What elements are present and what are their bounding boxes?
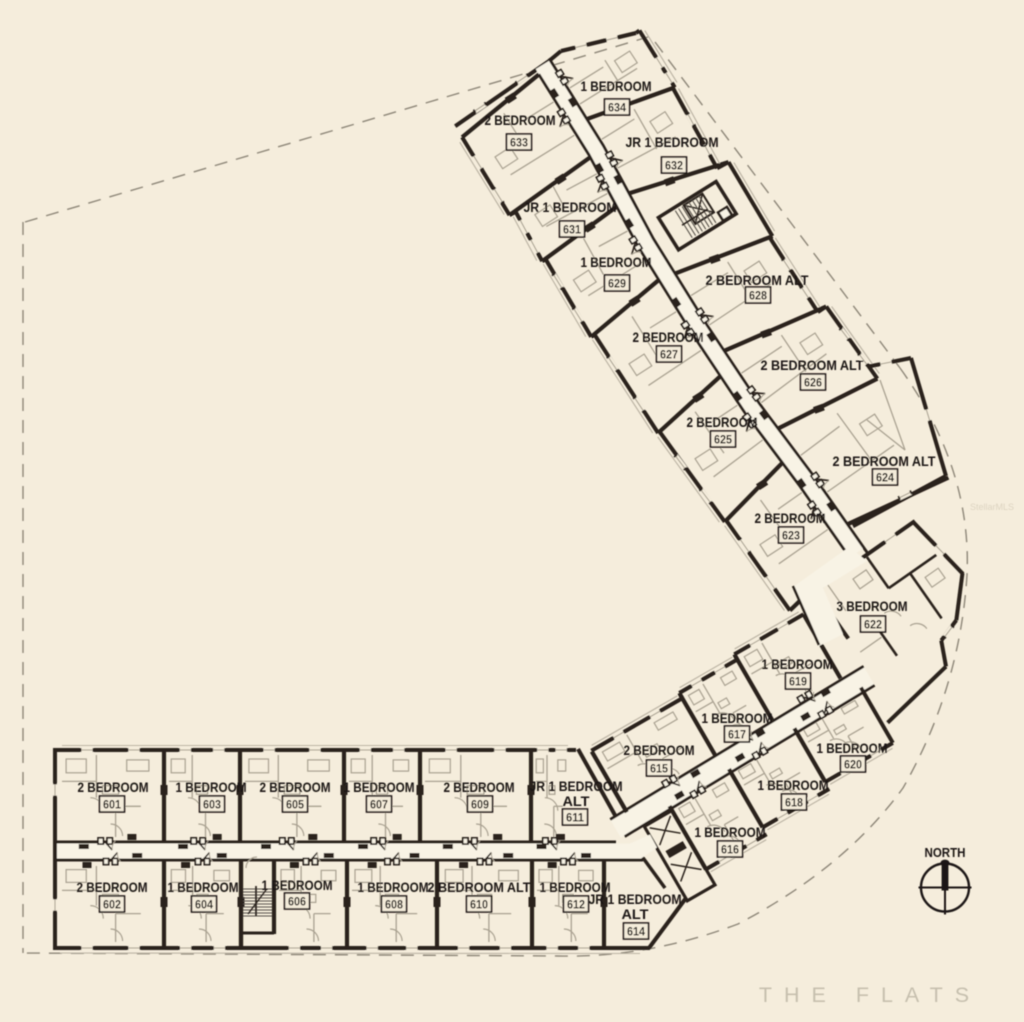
svg-text:2 BEDROOM: 2 BEDROOM xyxy=(444,779,515,795)
svg-text:2 BEDROOM: 2 BEDROOM xyxy=(78,779,149,795)
svg-text:619: 619 xyxy=(789,674,807,688)
svg-text:3 BEDROOM: 3 BEDROOM xyxy=(837,598,908,614)
svg-text:609: 609 xyxy=(471,797,489,811)
svg-text:1 BEDROOM: 1 BEDROOM xyxy=(762,656,833,672)
svg-text:601: 601 xyxy=(103,797,121,811)
svg-text:2 BEDROOM: 2 BEDROOM xyxy=(633,329,704,345)
svg-text:ALT: ALT xyxy=(563,793,590,809)
svg-text:608: 608 xyxy=(385,897,403,911)
svg-text:622: 622 xyxy=(864,617,882,631)
svg-text:NORTH: NORTH xyxy=(925,846,966,860)
svg-text:1 BEDROOM: 1 BEDROOM xyxy=(758,777,829,793)
svg-text:626: 626 xyxy=(804,375,822,389)
svg-text:1 BEDROOM: 1 BEDROOM xyxy=(358,879,429,895)
svg-text:2 BEDROOM ALT: 2 BEDROOM ALT xyxy=(761,357,864,373)
svg-text:JR 1 BEDROOM: JR 1 BEDROOM xyxy=(626,134,719,150)
svg-text:605: 605 xyxy=(286,797,304,811)
svg-text:JR 1 BEDROOM: JR 1 BEDROOM xyxy=(589,891,682,907)
svg-text:2 BEDROOM ALT: 2 BEDROOM ALT xyxy=(428,879,531,895)
svg-text:JR 1 BEDROOM: JR 1 BEDROOM xyxy=(530,778,623,794)
svg-text:614: 614 xyxy=(627,924,645,938)
svg-text:THE FLATS: THE FLATS xyxy=(759,983,981,1007)
svg-text:1 BEDROOM: 1 BEDROOM xyxy=(581,254,652,270)
svg-text:607: 607 xyxy=(370,797,388,811)
svg-text:2 BEDROOM: 2 BEDROOM xyxy=(687,414,758,430)
svg-text:ALT: ALT xyxy=(622,906,649,922)
svg-text:632: 632 xyxy=(665,158,683,172)
svg-text:602: 602 xyxy=(103,897,121,911)
svg-text:629: 629 xyxy=(608,276,626,290)
svg-text:2 BEDROOM: 2 BEDROOM xyxy=(260,779,331,795)
svg-text:620: 620 xyxy=(844,757,862,771)
svg-text:1 BEDROOM: 1 BEDROOM xyxy=(702,710,773,726)
svg-text:628: 628 xyxy=(749,288,767,302)
svg-text:616: 616 xyxy=(721,842,739,856)
svg-text:612: 612 xyxy=(567,897,585,911)
svg-text:631: 631 xyxy=(563,222,581,236)
svg-text:604: 604 xyxy=(195,897,213,911)
svg-text:1 BEDROOM: 1 BEDROOM xyxy=(695,824,766,840)
svg-text:StellarMLS: StellarMLS xyxy=(970,502,1014,512)
svg-text:625: 625 xyxy=(714,432,732,446)
svg-text:617: 617 xyxy=(728,727,746,741)
svg-text:2 BEDROOM: 2 BEDROOM xyxy=(77,879,148,895)
svg-text:1 BEDROOM: 1 BEDROOM xyxy=(262,877,333,893)
svg-text:634: 634 xyxy=(608,100,626,114)
svg-text:1 BEDROOM: 1 BEDROOM xyxy=(344,779,415,795)
svg-text:615: 615 xyxy=(650,761,668,775)
svg-text:624: 624 xyxy=(876,470,894,484)
svg-text:1 BEDROOM: 1 BEDROOM xyxy=(168,879,239,895)
svg-text:627: 627 xyxy=(660,347,678,361)
svg-text:611: 611 xyxy=(566,810,584,824)
svg-text:2 BEDROOM: 2 BEDROOM xyxy=(755,510,826,526)
svg-text:1 BEDROOM: 1 BEDROOM xyxy=(581,78,652,94)
svg-text:2 BEDROOM ALT: 2 BEDROOM ALT xyxy=(706,272,809,288)
svg-text:606: 606 xyxy=(288,894,306,908)
svg-text:JR 1 BEDROOM: JR 1 BEDROOM xyxy=(524,199,617,215)
svg-text:633: 633 xyxy=(510,135,528,149)
svg-text:2 BEDROOM ALT: 2 BEDROOM ALT xyxy=(833,453,936,469)
svg-text:1 BEDROOM: 1 BEDROOM xyxy=(817,740,888,756)
svg-text:610: 610 xyxy=(470,897,488,911)
svg-text:618: 618 xyxy=(785,795,803,809)
svg-text:2 BEDROOM: 2 BEDROOM xyxy=(485,112,556,128)
svg-text:623: 623 xyxy=(782,528,800,542)
svg-text:603: 603 xyxy=(203,797,221,811)
svg-text:1 BEDROOM: 1 BEDROOM xyxy=(176,779,247,795)
svg-text:2 BEDROOM: 2 BEDROOM xyxy=(624,742,695,758)
